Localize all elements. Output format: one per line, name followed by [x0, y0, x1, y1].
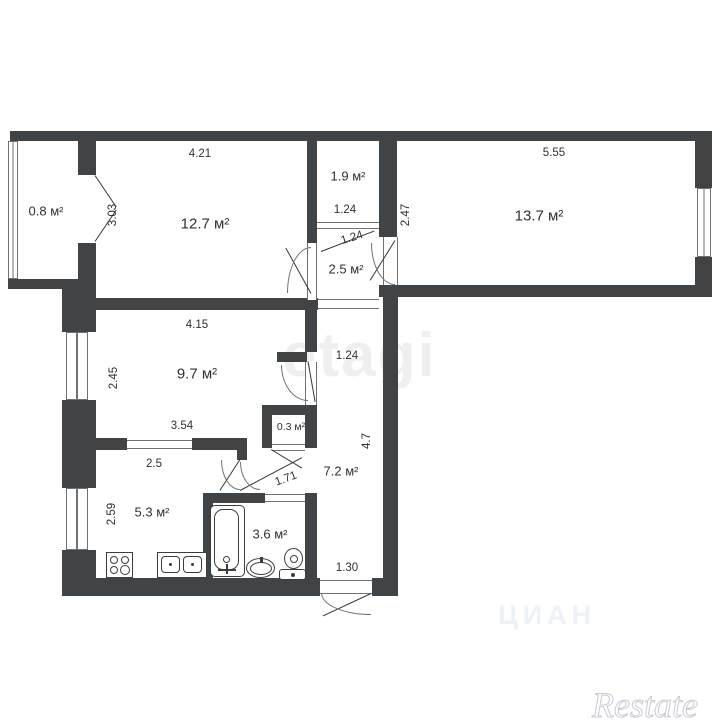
window: [66, 488, 88, 550]
area-label-wardrobe: 1.9 м²: [331, 169, 366, 184]
dimension-label: 2.45: [108, 367, 120, 389]
watermark-restate: Restate: [592, 684, 698, 725]
wall: [372, 578, 398, 596]
wall: [78, 243, 96, 289]
bathtub-icon: [210, 505, 245, 577]
kitchen-sink-icon: [157, 552, 207, 578]
dimension-label: 3.54: [171, 420, 193, 432]
balcony-door-leaf: [95, 175, 117, 207]
area-label-room: 9.7 м²: [177, 366, 217, 383]
dimension-label: 3.03: [107, 204, 119, 226]
dimension-label: 2.5: [146, 458, 162, 470]
door-opening: [272, 444, 305, 451]
window: [697, 188, 711, 257]
door-opening: [318, 299, 379, 309]
wall: [383, 297, 398, 596]
area-label-corridor: 7.2 м²: [324, 464, 359, 479]
entrance-door-opening: [320, 580, 372, 594]
dimension-label: 5.55: [543, 147, 565, 159]
wall: [62, 298, 318, 310]
wall: [62, 289, 96, 332]
area-label-balcony: 0.8 м²: [29, 204, 64, 219]
wall: [695, 141, 712, 188]
wall: [695, 257, 712, 297]
dimension-label: 1.24: [336, 350, 358, 362]
area-label-hall: 2.5 м²: [329, 262, 364, 277]
dimension-label: 2.47: [400, 204, 412, 226]
door-opening: [127, 440, 192, 449]
wall: [10, 131, 712, 141]
wall: [96, 438, 127, 450]
dimension-label: 4.21: [189, 148, 211, 160]
door-swing-arc: [221, 460, 240, 490]
wall: [8, 279, 80, 289]
wall: [262, 405, 272, 448]
wall: [62, 400, 96, 488]
area-label-closet: 0.3 м²: [277, 421, 305, 433]
wash-basin-icon: [246, 558, 275, 578]
window: [66, 332, 88, 400]
wall: [379, 141, 397, 237]
area-label-bedroom: 13.7 м²: [515, 208, 564, 225]
wall: [307, 141, 317, 243]
balcony-window: [8, 141, 18, 279]
floor-plan: etagi: [0, 0, 725, 725]
dimension-label: 1.71: [273, 470, 298, 489]
toilet-icon: [279, 548, 306, 581]
dimension-label: 4.15: [186, 319, 208, 331]
door-swing-arc: [281, 365, 308, 401]
wall: [237, 438, 247, 460]
stove-icon: [106, 552, 133, 578]
door-opening: [265, 494, 305, 502]
wall: [78, 141, 96, 175]
door-swing-arc: [240, 462, 260, 490]
dimension-label: 2.59: [106, 503, 118, 525]
dimension-label: 1.24: [334, 204, 356, 216]
area-label-kitchen: 5.3 м²: [135, 505, 170, 520]
wall: [379, 285, 712, 297]
dimension-label: 1.24: [340, 229, 365, 247]
wall: [305, 310, 317, 352]
door-opening: [317, 222, 379, 229]
door-swing-arc: [371, 243, 395, 285]
watermark-cian: ЦИАН: [498, 600, 596, 631]
wall: [305, 493, 317, 578]
door-swing-arc: [287, 247, 311, 293]
wall: [277, 352, 307, 362]
area-label-bathroom: 3.6 м²: [253, 527, 288, 542]
area-label-living: 12.7 м²: [181, 216, 230, 233]
dimension-label: 4.7: [361, 433, 373, 449]
dimension-label: 1.30: [336, 562, 358, 574]
